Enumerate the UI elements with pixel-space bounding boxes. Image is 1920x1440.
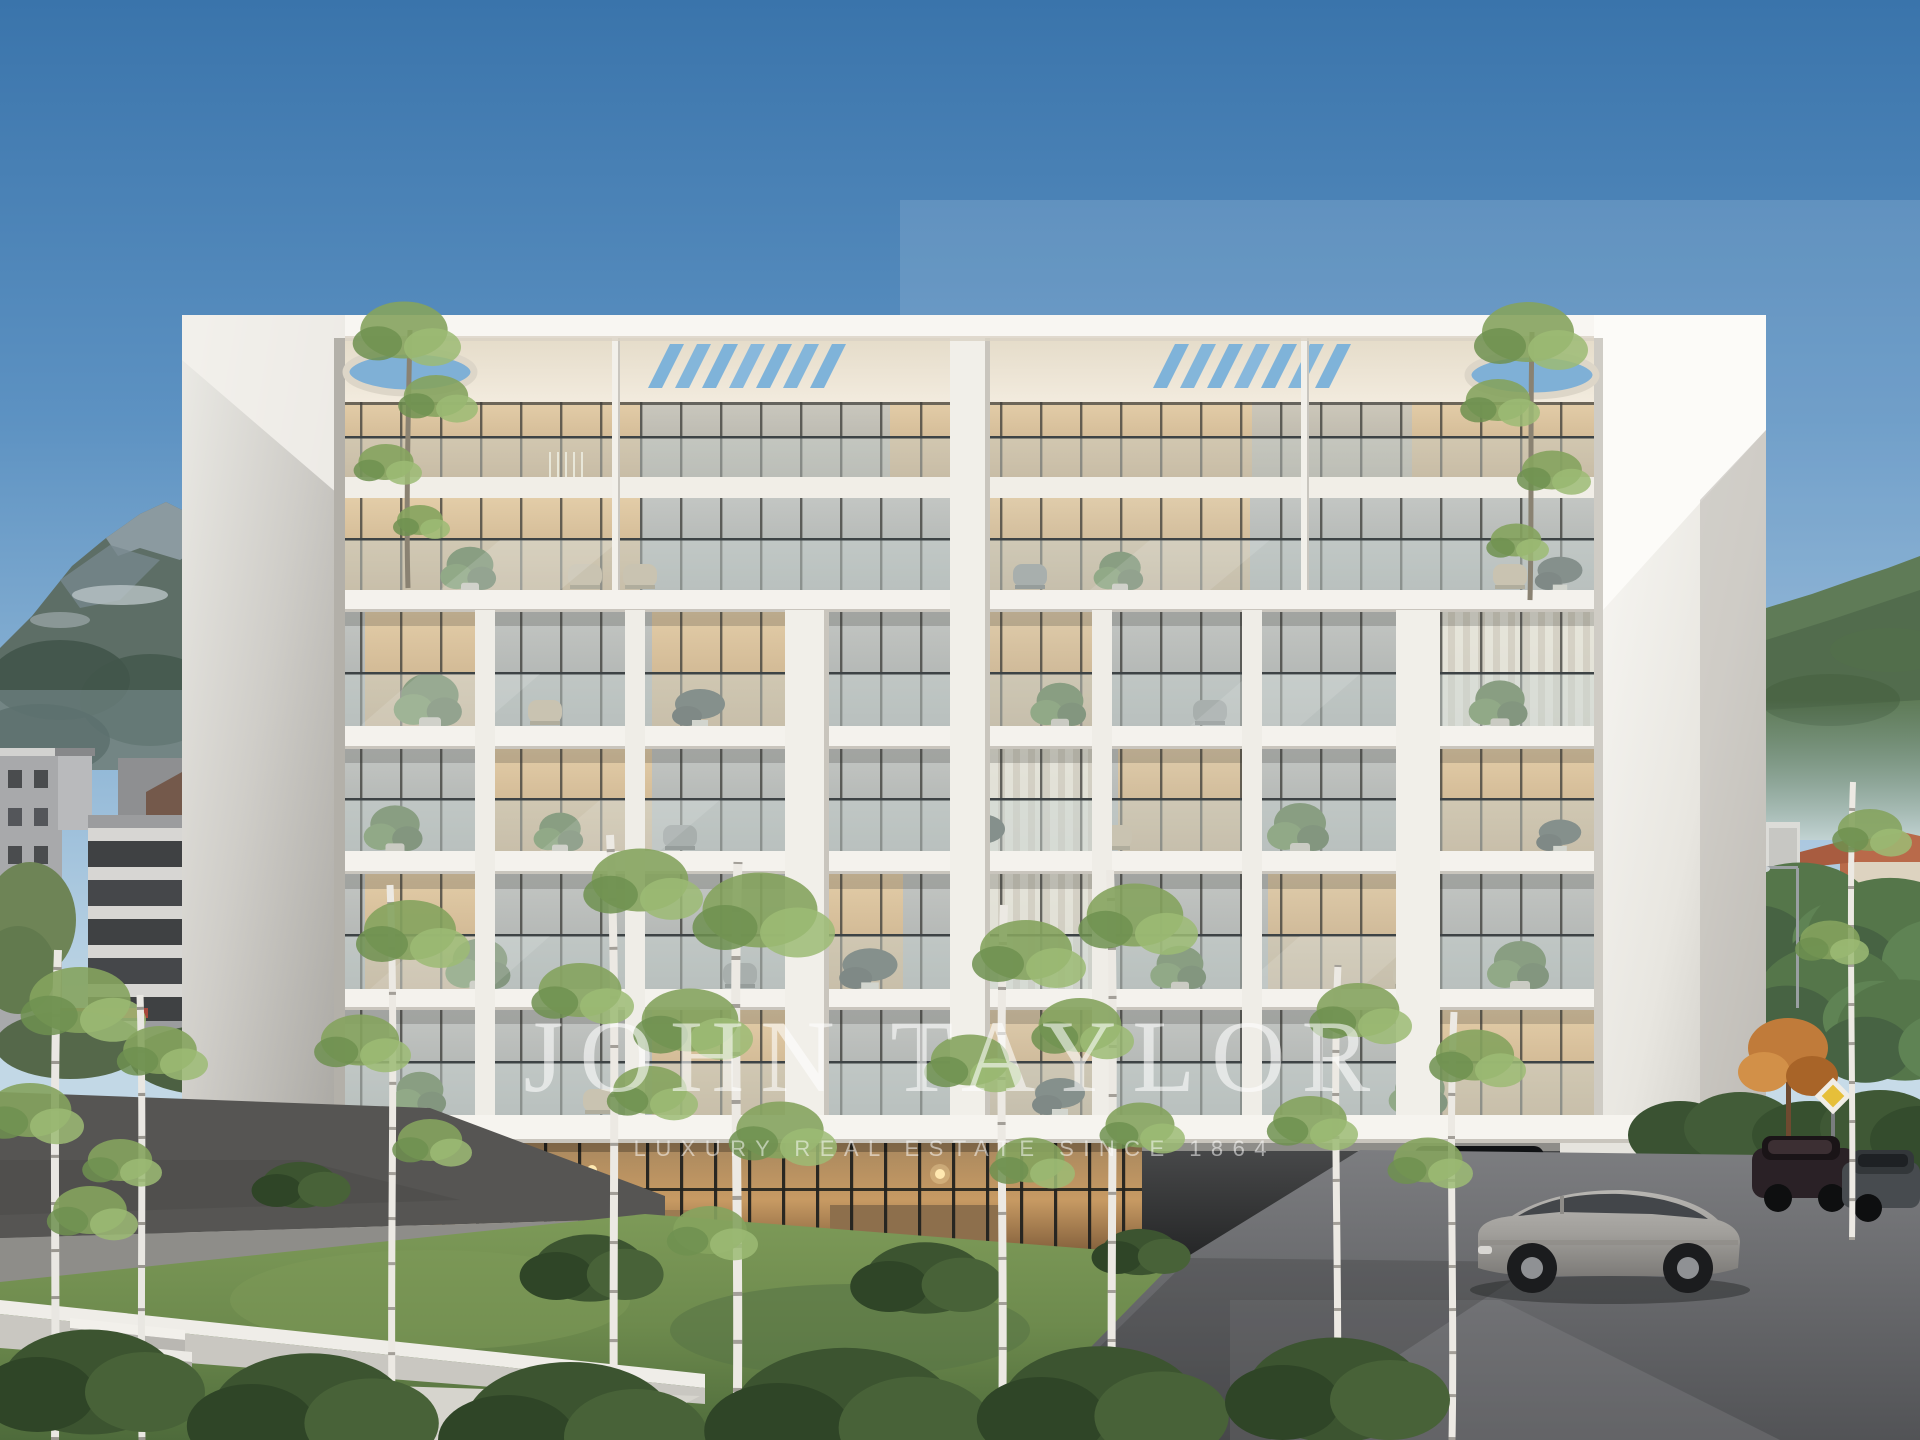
scene-canvas — [0, 0, 1920, 1440]
lobby-ceiling-slab — [345, 1115, 1766, 1142]
rendering-scene: JOHN TAYLOR LUXURY REAL ESTATE SINCE 186… — [0, 0, 1920, 1440]
